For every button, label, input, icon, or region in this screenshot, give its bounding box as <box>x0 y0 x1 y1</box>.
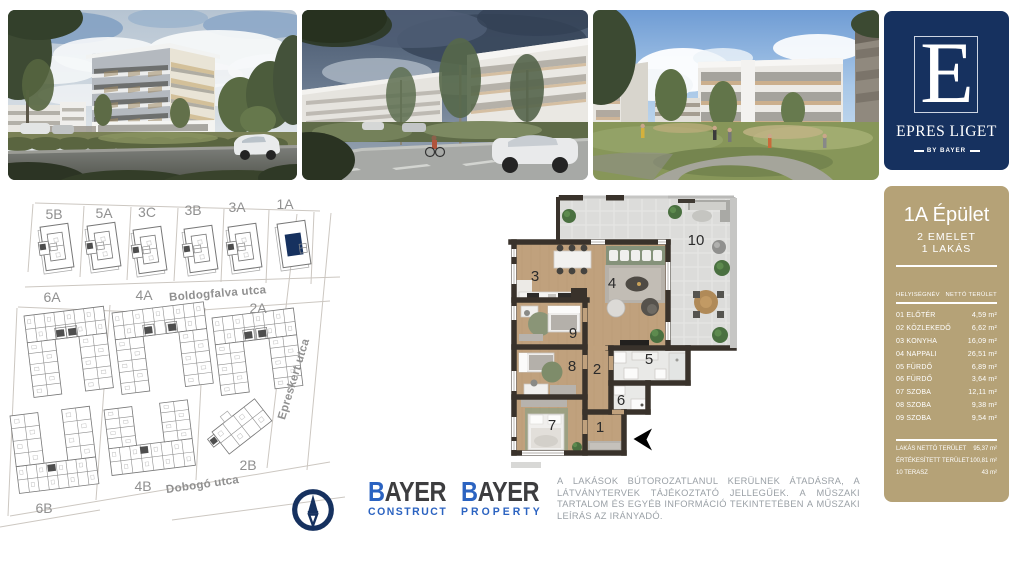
svg-text:2: 2 <box>593 361 601 378</box>
svg-text:3B: 3B <box>184 202 201 218</box>
svg-text:Dobogó utca: Dobogó utca <box>165 474 240 496</box>
svg-text:1A: 1A <box>276 196 294 212</box>
svg-text:8: 8 <box>568 358 576 375</box>
svg-text:3A: 3A <box>228 199 246 215</box>
svg-text:6B: 6B <box>35 500 52 516</box>
svg-text:6A: 6A <box>43 289 61 305</box>
svg-text:3C: 3C <box>138 204 156 220</box>
svg-text:5: 5 <box>645 351 653 368</box>
svg-text:4A: 4A <box>135 287 153 303</box>
svg-text:7: 7 <box>548 417 556 434</box>
svg-text:10: 10 <box>688 232 705 249</box>
svg-text:9: 9 <box>569 325 577 342</box>
svg-text:6: 6 <box>617 392 625 409</box>
svg-text:1: 1 <box>596 419 604 436</box>
svg-text:2A: 2A <box>249 300 267 316</box>
svg-text:5B: 5B <box>45 206 62 222</box>
svg-text:2B: 2B <box>239 457 256 473</box>
svg-text:3: 3 <box>531 268 539 285</box>
svg-text:5A: 5A <box>95 205 113 221</box>
svg-text:4B: 4B <box>134 478 151 494</box>
svg-text:4: 4 <box>608 275 616 292</box>
